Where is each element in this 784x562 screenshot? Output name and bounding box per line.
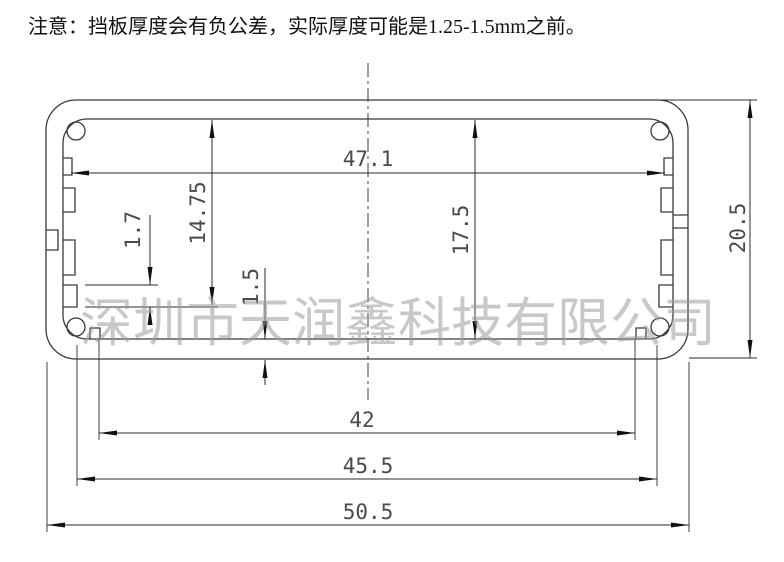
- dim-20-5: 20.5: [726, 203, 750, 254]
- dimension-arrows: [47, 100, 753, 528]
- screw-boss-top-right: [651, 122, 669, 140]
- right-wall-slots: [659, 158, 673, 307]
- profile-drawing: 47.1 42 45.5 50.5 14.75 1.7 1.5 17.5 20.…: [0, 0, 784, 562]
- extension-lines: [47, 100, 757, 532]
- dim-45-5: 45.5: [343, 454, 394, 478]
- dim-1-7: 1.7: [121, 211, 145, 249]
- left-panel-groove: [46, 230, 58, 250]
- dim-inner-width-top: 47.1: [343, 147, 394, 171]
- dim-1-5: 1.5: [239, 268, 263, 306]
- dim-14-75: 14.75: [186, 181, 210, 244]
- left-wall-slots: [63, 158, 77, 307]
- dim-17-5: 17.5: [449, 205, 473, 256]
- note-text: 注意：挡板厚度会有负公差，实际厚度可能是1.25-1.5mm之前。: [28, 10, 586, 39]
- right-panel-slot: [673, 215, 688, 228]
- dimension-lines: [47, 100, 750, 525]
- dim-50-5: 50.5: [343, 500, 394, 524]
- screw-boss-bottom-right: [651, 318, 669, 336]
- screw-boss-top-left: [67, 122, 85, 140]
- dim-42: 42: [349, 408, 374, 432]
- screw-boss-bottom-left: [67, 318, 85, 336]
